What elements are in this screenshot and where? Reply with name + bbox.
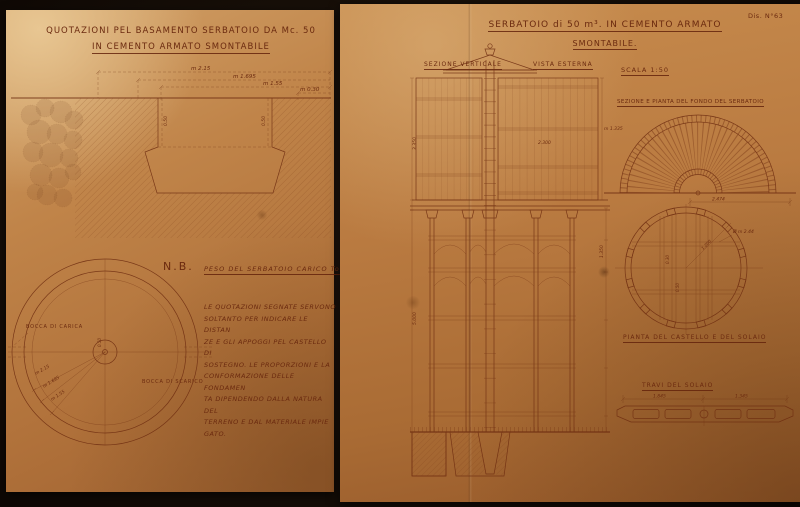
right-title-line1: SERBATOIO di 50 m³. IN CEMENTO ARMATO [480, 20, 730, 30]
plan-radius-3: m 1.55 [50, 389, 67, 403]
paper-stain [598, 266, 610, 278]
note-line: CONFORMAZIONE DELLE FONDAMEN [204, 371, 336, 394]
pit-outline [145, 98, 285, 193]
left-drawing-sheet: QUOTAZIONI PEL BASAMENTO SERBATOIO DA Mc… [6, 10, 334, 492]
note-line: TA DIPENDENDO DALLA NATURA DEL [204, 394, 336, 417]
nb-text: PESO DEL SERBATOIO CARICO Tonn. [204, 265, 353, 273]
ground-foundation [410, 430, 610, 477]
note-line: LE QUOTAZIONI SEGNATE SERVONO [204, 302, 336, 314]
right-drawing-sheet: Dis. N°63 SERBATOIO di 50 m³. IN CEMENTO… [340, 4, 800, 502]
fondo-serbatoio-label: SEZIONE E PIANTA DEL FONDO DEL SERBATOIO [617, 99, 764, 105]
dim-2-15: m 2.15 [191, 66, 211, 72]
bocca-openings [8, 333, 212, 357]
note-line: SOLTANTO PER INDICARE LE DISTAN [204, 314, 336, 337]
wall-dim-left: 0.50 [163, 116, 169, 126]
tower-dim-left-upper: 3.350 [412, 137, 418, 150]
plan-radius-2: m 1.695 [42, 375, 61, 390]
dim-1-55: m 1.55 [263, 81, 283, 87]
bocca-di-carica-label: BOCCA DI CARICA [26, 324, 83, 330]
left-title-line2-text: IN CEMENTO ARMATO SMONTABILE [92, 42, 270, 54]
floor-beam-drawing: 1.845 1.345 [615, 392, 800, 442]
tower-dim-right: 1.350 [599, 245, 605, 258]
tank-external [498, 78, 598, 200]
fan-radius-label: m 1.335 [604, 126, 623, 132]
left-title-line2: IN CEMENTO ARMATO SMONTABILE [36, 42, 326, 52]
water-tower-drawing: 3.350 5.000 2.300 1.350 [410, 40, 610, 480]
note-paragraph: LE QUOTAZIONI SEGNATE SERVONO SOLTANTO P… [204, 302, 336, 440]
basin-plan-drawing: BOCCA DI CARICA BOCCA DI SCARICO m 2.15 … [6, 255, 216, 490]
pianta-castello-label: PIANTA DEL CASTELLO E DEL SOLAIO [623, 334, 766, 341]
left-title-line1: QUOTAZIONI PEL BASAMENTO SERBATOIO DA Mc… [36, 26, 326, 36]
central-column [486, 60, 494, 432]
castello-plan-drawing: 1.200 Ø m 2.44 0.30 0.50 [615, 200, 800, 340]
foundation-section-drawing: m 2.15 m 1.695 m 1.55 m 0.30 0.50 0.50 [11, 60, 331, 250]
castello-radius-label: 1.200 [700, 238, 712, 250]
travi-solaio-label: TRAVI DEL SOLAIO [642, 382, 713, 389]
vegetation-texture [21, 99, 83, 207]
roof-finial [443, 44, 537, 73]
paper-stain [256, 210, 268, 220]
beam-dimension [621, 395, 789, 403]
plan-center-dim: 0.50 [97, 338, 102, 347]
bocca-di-scarico-label: BOCCA DI SCARICO [142, 379, 203, 385]
note-line: SOSTEGNO. LE PROPORZIONI E LA [204, 360, 336, 372]
scala-label: SCALA 1:50 [621, 66, 669, 74]
note-line: TERRENO E DAL MATERIALE IMPIE [204, 417, 336, 429]
beam-dim-left: 1.845 [653, 394, 666, 400]
tank-bottom-fan-drawing: 2.474 m 1.335 [600, 110, 800, 214]
castello-diameter-label: Ø m 2.44 [732, 228, 754, 235]
wall-dim-right: 0.50 [261, 116, 267, 126]
castello-dim1: 0.30 [665, 255, 670, 264]
ground-hatch [75, 98, 331, 238]
beam-dim-right: 1.345 [735, 394, 748, 400]
tower-dim-center: 2.300 [538, 140, 551, 146]
tower-dimension-chains [410, 78, 608, 432]
dim-1-695: m 1.695 [233, 74, 256, 80]
castello-dim2: 0.50 [675, 283, 680, 292]
note-line: GATO. [204, 429, 336, 441]
tank-cornice [410, 200, 610, 218]
dim-0-30: m 0.30 [300, 87, 320, 93]
tank-section [416, 78, 482, 200]
support-trestle [428, 218, 576, 432]
paper-stain [405, 296, 421, 309]
tower-dim-left-lower: 5.000 [412, 312, 418, 325]
plan-radius-1: m 2.15 [34, 364, 51, 377]
drawing-number: Dis. N°63 [748, 12, 783, 20]
note-line: ZE E GLI APPOGGI PEL CASTELLO DI [204, 337, 336, 360]
